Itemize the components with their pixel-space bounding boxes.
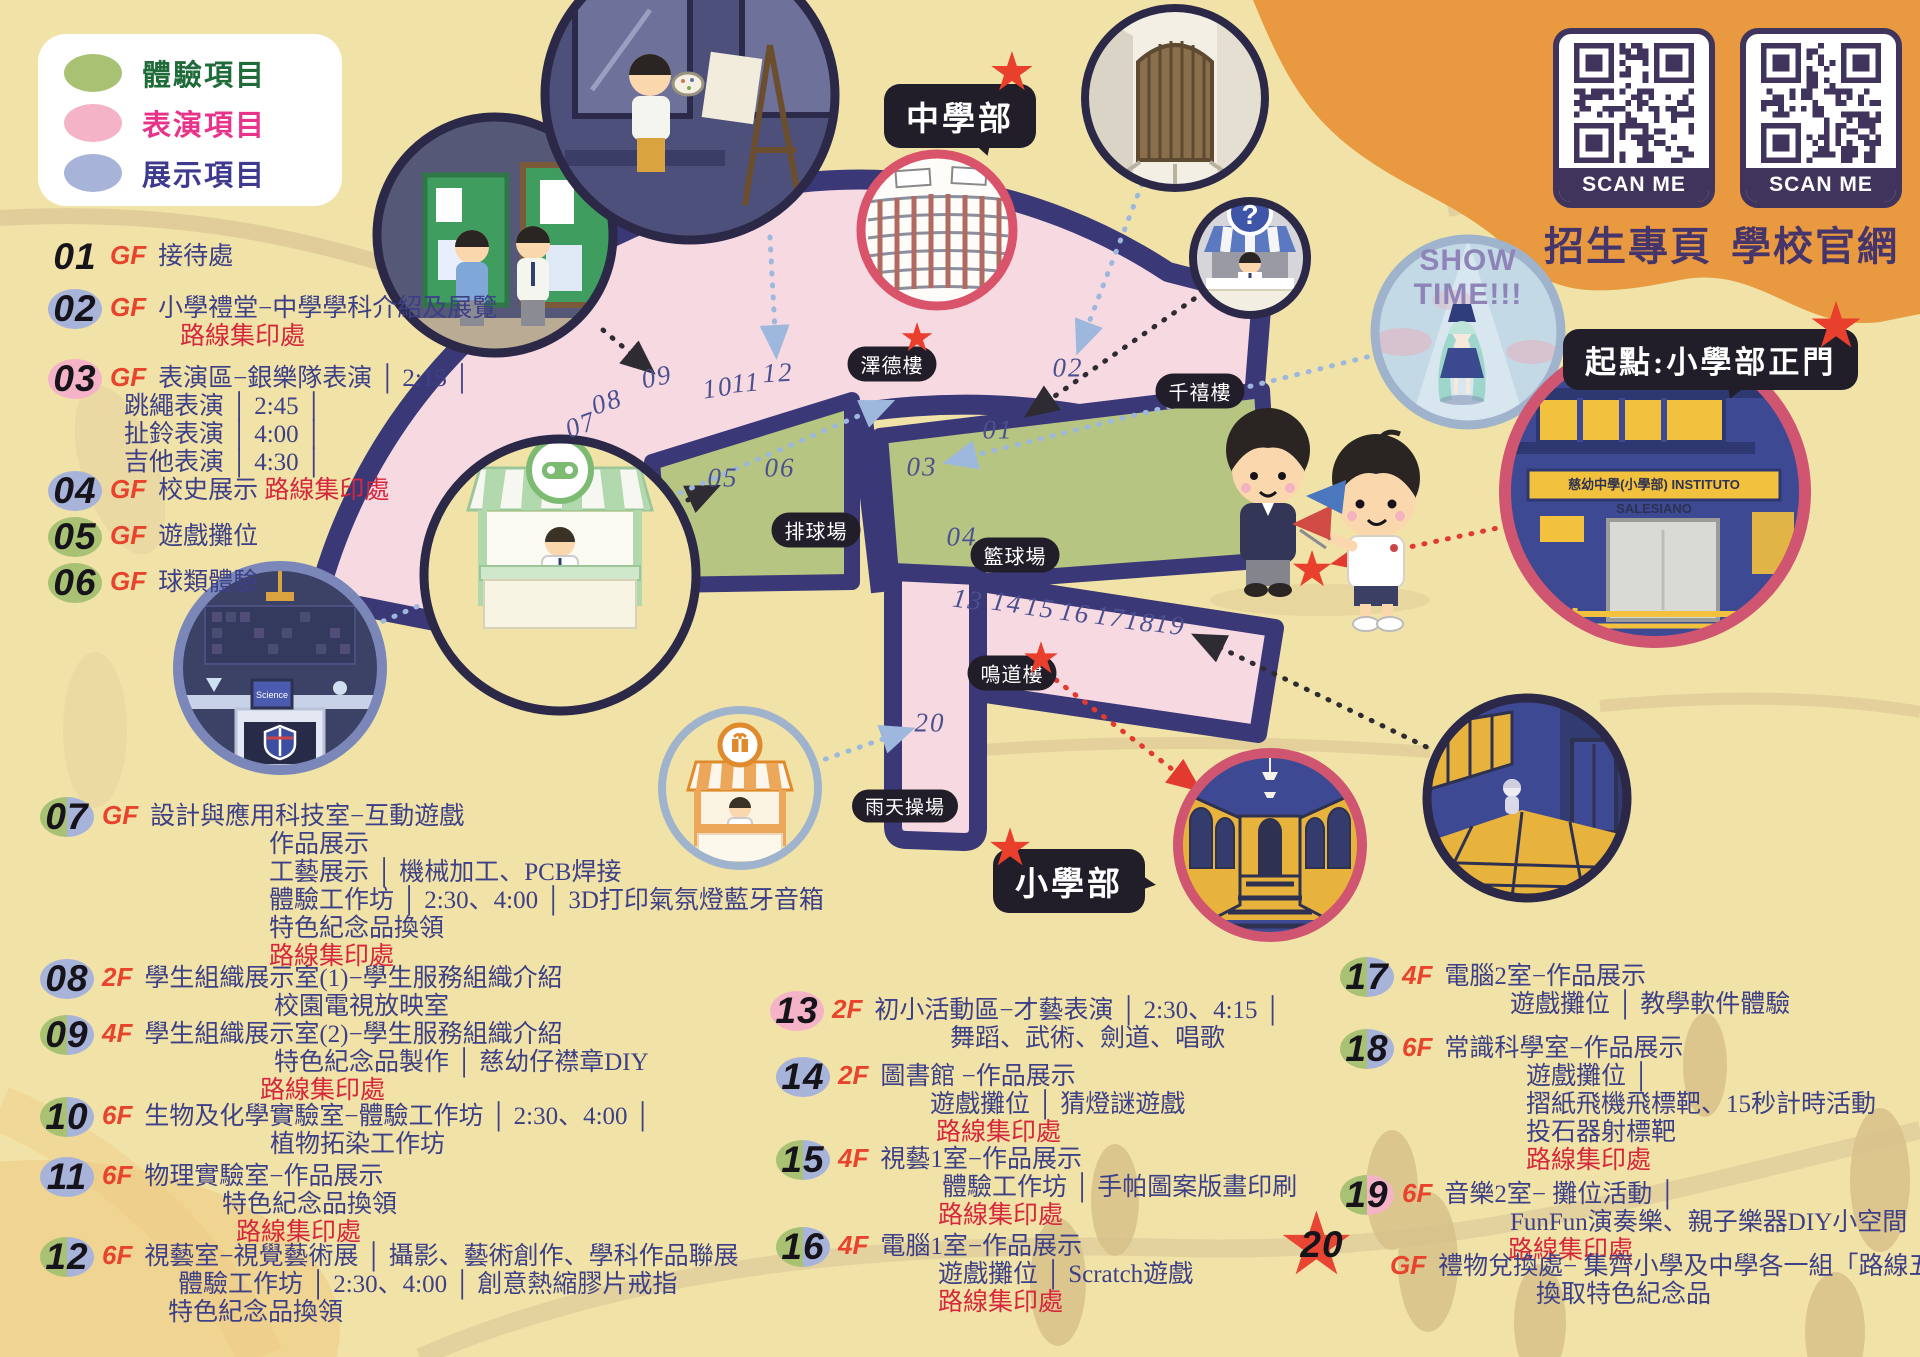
item-line: 特色紀念品換領 (102, 1191, 397, 1219)
item-number: 11 (47, 1156, 87, 1197)
item-line: 特色紀念品製作 │ 慈幼仔襟章DIY (102, 1049, 649, 1077)
item-line: GF禮物兌換處− 集齊小學及中學各一組「路線五印」 (1390, 1250, 1920, 1281)
item-number: 20 (1300, 1224, 1343, 1265)
item-floor: GF (110, 362, 146, 392)
item-number: 08 (45, 958, 88, 999)
item-floor: GF (110, 292, 146, 322)
star-start-point: ★ (1807, 294, 1864, 358)
item-line: 2F學生組織展示室(1)−學生服務組織介紹 (102, 962, 563, 993)
item-line: 遊戲攤位 │ Scratch遊戲 (838, 1261, 1193, 1289)
item-badge: 04 (42, 469, 108, 513)
item-line: 摺紙飛機飛標靶、15秒計時活動 (1402, 1091, 1876, 1119)
item-floor: 2F (832, 994, 862, 1024)
science-monitor-label: Science (252, 688, 292, 702)
item-floor: 4F (838, 1143, 868, 1173)
item-line: 路線集印處 (838, 1289, 1193, 1317)
item-text: 初小活動區−才藝表演 │ 2:30、4:15 │ (874, 997, 1281, 1024)
item-floor: GF (110, 520, 146, 550)
item-floor: GF (110, 566, 146, 596)
item-number: 17 (1345, 956, 1388, 997)
item-floor: 2F (838, 1060, 868, 1090)
route-stamp-text: 路線集印處 (938, 1289, 1063, 1316)
item-badge: 07 (34, 795, 100, 839)
item-badge: 10 (34, 1095, 100, 1139)
route-stamp-text: 路線集印處 (936, 1119, 1061, 1146)
item-text: 體驗工作坊 │ 2:30、4:00 │ 3D打印氣氛燈藍牙音箱 (269, 887, 824, 914)
item-badge: 12 (34, 1235, 100, 1279)
item-line: 路線集印處 (838, 1202, 1297, 1230)
map-marker-11: 11 (730, 366, 762, 399)
item-line: 特色紀念品換領 (102, 915, 824, 943)
item-floor: 6F (1402, 1032, 1432, 1062)
item-number: 12 (45, 1236, 88, 1277)
item-text: 換取特色紀念品 (1536, 1281, 1711, 1308)
illustration-entrance (1085, 8, 1265, 192)
item-text: 遊戲攤位 │ 教學軟件體驗 (1510, 991, 1790, 1018)
legend-item: 體驗項目 (64, 48, 342, 98)
item-badge: 01 (42, 235, 108, 279)
qr-code-admissions (1574, 43, 1694, 163)
list-item-12: 126F視藝室−視覺藝術展 │ 攝影、藝術創作、學科作品聯展體驗工作坊 │ 2:… (40, 1240, 739, 1327)
item-line: 遊戲攤位 │ (1402, 1063, 1876, 1091)
map-marker-19: 19 (1152, 607, 1187, 642)
item-text: 音樂2室− 攤位活動 │ (1444, 1181, 1676, 1208)
list-item-11: 116F物理實驗室−作品展示特色紀念品換領路線集印處 (40, 1160, 397, 1247)
item-text: 扯鈴表演 │ 4:00 │ (124, 421, 323, 448)
item-text: 接待處 (158, 243, 233, 270)
list-item-04: 04GF校史展示 路線集印處 (48, 474, 389, 505)
list-item-17: 174F電腦2室−作品展示遊戲攤位 │ 教學軟件體驗 (1340, 960, 1790, 1019)
item-text: 體驗工作坊 │ 2:30、4:00 │ 創意熱縮膠片戒指 (178, 1271, 677, 1298)
list-item-08: 082F學生組織展示室(1)−學生服務組織介紹校園電視放映室 (40, 962, 563, 1021)
list-item-03: 03GF表演區−銀樂隊表演 │ 2:15 │跳繩表演 │ 2:45 │扯鈴表演 … (48, 362, 471, 477)
item-number: 02 (53, 288, 96, 329)
item-number: 09 (45, 1014, 88, 1055)
item-number: 10 (45, 1096, 88, 1137)
item-text: 植物拓染工作坊 (270, 1131, 445, 1158)
item-text: 特色紀念品製作 │ 慈幼仔襟章DIY (274, 1049, 649, 1076)
pill-millennium-building: 千禧樓 (1156, 374, 1245, 409)
item-text: 生物及化學實驗室−體驗工作坊 │ 2:30、4:00 │ (144, 1103, 651, 1130)
scan-me-label: SCAN ME (1746, 168, 1896, 202)
item-number: 03 (53, 358, 96, 399)
item-badge: 16 (770, 1225, 836, 1269)
item-text: 視藝1室−作品展示 (880, 1146, 1082, 1173)
legend-color-dot (64, 104, 122, 142)
item-floor: GF (110, 474, 146, 504)
item-floor: GF (110, 240, 146, 270)
open-day-poster: 體驗項目表演項目展示項目 SCAN ME SCAN ME 招生專頁 學校官網 S… (0, 0, 1920, 1357)
item-text: 摺紙飛機飛標靶、15秒計時活動 (1526, 1091, 1876, 1118)
map-marker-02: 02 (1053, 353, 1084, 384)
item-number: 15 (781, 1139, 824, 1180)
item-text: FunFun演奏樂、親子樂器DIY小空間 (1510, 1209, 1907, 1236)
item-text: 球類體驗 (158, 569, 258, 596)
pill-basketball-court: 籃球場 (971, 538, 1060, 573)
item-number: 04 (53, 470, 96, 511)
item-line: 投石器射標靶 (1402, 1119, 1876, 1147)
route-stamp-text: 路線集印處 (938, 1202, 1063, 1229)
item-line: 校園電視放映室 (102, 993, 563, 1021)
item-text: 圖書館 −作品展示 (880, 1063, 1075, 1090)
item-text: 常識科學室−作品展示 (1444, 1035, 1683, 1062)
item-badge: 18 (1334, 1027, 1400, 1071)
item-line: 遊戲攤位 │ 猜燈謎遊戲 (838, 1091, 1185, 1119)
map-marker-04: 04 (947, 522, 978, 553)
item-line: 體驗工作坊 │ 2:30、4:00 │ 3D打印氣氛燈藍牙音箱 (102, 887, 824, 915)
map-marker-09: 09 (639, 359, 676, 396)
item-text: 學生組織展示室(2)−學生服務組織介紹 (144, 1021, 562, 1048)
map-marker-13: 13 (950, 582, 985, 617)
illustration-yellow-corridor (1427, 698, 1630, 898)
legend-item: 表演項目 (64, 98, 342, 148)
legend-color-dot (64, 154, 122, 192)
map-marker-15: 15 (1022, 590, 1057, 625)
item-line: 6F常識科學室−作品展示 (1402, 1032, 1876, 1063)
item-line: 舞蹈、武術、劍道、唱歌 (832, 1025, 1282, 1053)
item-line: 2F初小活動區−才藝表演 │ 2:30、4:15 │ (832, 994, 1282, 1025)
item-text: 工藝展示 │ 機械加工、PCB焊接 (269, 859, 621, 886)
item-line: 路線集印處 (110, 323, 497, 351)
list-item-15: 154F視藝1室−作品展示體驗工作坊 │ 手帕圖案版畫印刷路線集印處 (776, 1143, 1297, 1230)
item-line: GF接待處 (110, 240, 233, 271)
item-line: 扯鈴表演 │ 4:00 │ (110, 421, 471, 449)
item-number: 01 (53, 236, 96, 277)
item-line: 4F電腦1室−作品展示 (838, 1230, 1193, 1261)
item-badge: 14 (770, 1055, 836, 1099)
item-text: 作品展示 (269, 831, 369, 858)
item-number: 13 (775, 990, 818, 1031)
item-line: GF遊戲攤位 (110, 520, 258, 551)
item-line: 路線集印處 (1402, 1147, 1876, 1175)
illustration-arched-corridor (1178, 753, 1362, 937)
item-line: GF表演區−銀樂隊表演 │ 2:15 │ (110, 362, 471, 393)
item-line: 植物拓染工作坊 (102, 1131, 652, 1159)
item-line: 換取特色紀念品 (1390, 1281, 1920, 1309)
item-line: 吉他表演 │ 4:30 │ (110, 449, 471, 477)
legend-item: 展示項目 (64, 148, 342, 198)
item-badge: 03 (42, 357, 108, 401)
item-line: 4F電腦2室−作品展示 (1402, 960, 1790, 991)
list-item-02: 02GF小學禮堂−中學學科介紹及展覽路線集印處 (48, 292, 497, 351)
item-text: 特色紀念品換領 (168, 1299, 343, 1326)
item-text: 遊戲攤位 │ Scratch遊戲 (938, 1261, 1193, 1288)
item-number: 06 (53, 562, 96, 603)
item-floor: 4F (102, 1018, 132, 1048)
item-line: FunFun演奏樂、親子樂器DIY小空間 (1402, 1209, 1907, 1237)
legend-label: 表演項目 (142, 102, 266, 144)
question-mark-icon: ? (1236, 200, 1264, 230)
star-secondary-school: ★ (988, 45, 1036, 99)
item-line: GF校史展示 路線集印處 (110, 474, 389, 505)
illustration-game-booth (424, 439, 696, 711)
item-floor: 4F (1402, 960, 1432, 990)
item-line: GF球類體驗 (110, 566, 258, 597)
item-line: 特色紀念品換領 (102, 1299, 739, 1327)
route-stamp-text: 路線集印處 (264, 477, 389, 504)
route-stamp-text: 路線集印處 (1526, 1147, 1651, 1174)
item-text: 特色紀念品換領 (269, 915, 444, 942)
item-text: 電腦1室−作品展示 (880, 1233, 1082, 1260)
item-line: 體驗工作坊 │ 手帕圖案版畫印刷 (838, 1174, 1297, 1202)
star-mingdao: ★ (1021, 637, 1060, 681)
item-number: 05 (53, 516, 96, 557)
item-text: 小學禮堂−中學學科介紹及展覽 (158, 295, 497, 322)
item-line: 6F音樂2室− 攤位活動 │ (1402, 1178, 1907, 1209)
pill-rainy-playground: 雨天操場 (852, 790, 958, 823)
item-floor: GF (1390, 1250, 1426, 1280)
item-text: 投石器射標靶 (1526, 1119, 1676, 1146)
item-line: GF設計與應用科技室−互動遊戲 (102, 800, 824, 831)
item-badge: 06 (42, 561, 108, 605)
item-floor: 6F (102, 1100, 132, 1130)
item-text: 遊戲攤位 (158, 523, 258, 550)
map-marker-20: 20 (915, 708, 946, 739)
illustration-facade-sketch (861, 154, 1015, 308)
map-marker-06: 06 (765, 453, 796, 484)
item-text: 禮物兌換處− 集齊小學及中學各一組「路線五印」 (1438, 1253, 1920, 1280)
list-item-13: 132F初小活動區−才藝表演 │ 2:30、4:15 │舞蹈、武術、劍道、唱歌 (770, 994, 1282, 1053)
item-floor: 6F (102, 1240, 132, 1270)
item-floor: 4F (838, 1230, 868, 1260)
list-item-14: 142F圖書館 −作品展示遊戲攤位 │ 猜燈謎遊戲路線集印處 (776, 1060, 1185, 1147)
legend-label: 體驗項目 (142, 52, 266, 94)
map-marker-14: 14 (989, 585, 1024, 620)
list-item-20: 20GF禮物兌換處− 集齊小學及中學各一組「路線五印」換取特色紀念品 (1328, 1250, 1920, 1309)
item-text: 表演區−銀樂隊表演 │ 2:15 │ (158, 365, 471, 392)
star-route-boys: ★ (1290, 544, 1335, 594)
basketball-court (880, 390, 1272, 588)
item-text: 設計與應用科技室−互動遊戲 (150, 803, 464, 830)
item-badge: 17 (1334, 955, 1400, 999)
map-marker-12: 12 (762, 357, 795, 390)
item-number: 07 (45, 796, 88, 837)
item-text: 學生組織展示室(1)−學生服務組織介紹 (144, 965, 562, 992)
item-badge-star: 20 (1289, 1223, 1355, 1267)
item-text: 遊戲攤位 │ 猜燈謎遊戲 (930, 1091, 1185, 1118)
list-item-06: 06GF球類體驗 (48, 566, 258, 597)
star-zedek: ★ (899, 318, 935, 358)
item-text: 遊戲攤位 │ (1526, 1063, 1650, 1090)
item-badge: 05 (42, 515, 108, 559)
item-line: 跳繩表演 │ 2:45 │ (110, 393, 471, 421)
item-text: 校園電視放映室 (274, 993, 449, 1020)
item-floor: 6F (102, 1160, 132, 1190)
item-number: 16 (781, 1226, 824, 1267)
pill-volleyball-court: 排球場 (772, 513, 861, 548)
list-item-07: 07GF設計與應用科技室−互動遊戲作品展示工藝展示 │ 機械加工、PCB焊接體驗… (40, 800, 824, 971)
item-line: 體驗工作坊 │ 2:30、4:00 │ 創意熱縮膠片戒指 (102, 1271, 739, 1299)
show-time-text: SHOW TIME!!! (1403, 244, 1533, 312)
item-text: 舞蹈、武術、劍道、唱歌 (950, 1025, 1225, 1052)
item-number: 14 (781, 1056, 824, 1097)
item-line: 作品展示 (102, 831, 824, 859)
item-line: 2F圖書館 −作品展示 (838, 1060, 1185, 1091)
item-text: 電腦2室−作品展示 (1444, 963, 1646, 990)
item-line: 6F物理實驗室−作品展示 (102, 1160, 397, 1191)
list-item-01: 01GF接待處 (48, 240, 233, 271)
item-floor: 6F (1402, 1178, 1432, 1208)
item-badge: 15 (770, 1138, 836, 1182)
legend-color-dot (64, 54, 122, 92)
qr-caption-admissions: 招生專頁 (1528, 214, 1728, 272)
item-floor: 2F (102, 962, 132, 992)
item-text: 校史展示 (158, 477, 264, 504)
gate-sign-text: 慈幼中學(小學部) INSTITUTO SALESIANO (1532, 473, 1776, 521)
route-stamp-text: 路線集印處 (180, 323, 305, 350)
map-marker-01: 01 (983, 415, 1014, 446)
item-floor: GF (102, 800, 138, 830)
list-item-18: 186F常識科學室−作品展示遊戲攤位 │摺紙飛機飛標靶、15秒計時活動投石器射標… (1340, 1032, 1876, 1175)
qr-card-admissions: SCAN ME (1553, 28, 1715, 208)
map-marker-05: 05 (708, 463, 739, 494)
item-text: 物理實驗室−作品展示 (144, 1163, 383, 1190)
item-line: 4F學生組織展示室(2)−學生服務組織介紹 (102, 1018, 649, 1049)
star-primary-school: ★ (987, 822, 1034, 874)
map-marker-03: 03 (907, 452, 938, 483)
item-line: 遊戲攤位 │ 教學軟件體驗 (1402, 991, 1790, 1019)
qr-caption-website: 學校官網 (1715, 214, 1915, 272)
item-line: 4F視藝1室−作品展示 (838, 1143, 1297, 1174)
legend-card: 體驗項目表演項目展示項目 (38, 34, 342, 206)
item-line: 6F生物及化學實驗室−體驗工作坊 │ 2:30、4:00 │ (102, 1100, 652, 1131)
item-badge: 09 (34, 1013, 100, 1057)
item-badge: 02 (42, 287, 108, 331)
map-marker-16: 16 (1057, 595, 1092, 630)
item-text: 跳繩表演 │ 2:45 │ (124, 393, 323, 420)
qr-code-website (1761, 43, 1881, 163)
item-line: 工藝展示 │ 機械加工、PCB焊接 (102, 859, 824, 887)
list-item-16: 164F電腦1室−作品展示遊戲攤位 │ Scratch遊戲路線集印處 (776, 1230, 1193, 1317)
item-number: 18 (1345, 1028, 1388, 1069)
legend-label: 展示項目 (142, 152, 266, 194)
list-item-10: 106F生物及化學實驗室−體驗工作坊 │ 2:30、4:00 │植物拓染工作坊 (40, 1100, 652, 1159)
item-line: 6F視藝室−視覺藝術展 │ 攝影、藝術創作、學科作品聯展 (102, 1240, 739, 1271)
item-line: GF小學禮堂−中學學科介紹及展覽 (110, 292, 497, 323)
item-text: 特色紀念品換領 (222, 1191, 397, 1218)
item-badge: 11 (34, 1155, 100, 1199)
list-item-09: 094F學生組織展示室(2)−學生服務組織介紹特色紀念品製作 │ 慈幼仔襟章DI… (40, 1018, 649, 1105)
item-text: 體驗工作坊 │ 手帕圖案版畫印刷 (942, 1174, 1297, 1201)
scan-me-label: SCAN ME (1559, 168, 1709, 202)
item-badge: 13 (764, 989, 830, 1033)
item-text: 吉他表演 │ 4:30 │ (124, 449, 323, 476)
item-badge: 08 (34, 957, 100, 1001)
list-item-05: 05GF遊戲攤位 (48, 520, 258, 551)
item-text: 視藝室−視覺藝術展 │ 攝影、藝術創作、學科作品聯展 (144, 1243, 738, 1270)
qr-card-website: SCAN ME (1740, 28, 1902, 208)
